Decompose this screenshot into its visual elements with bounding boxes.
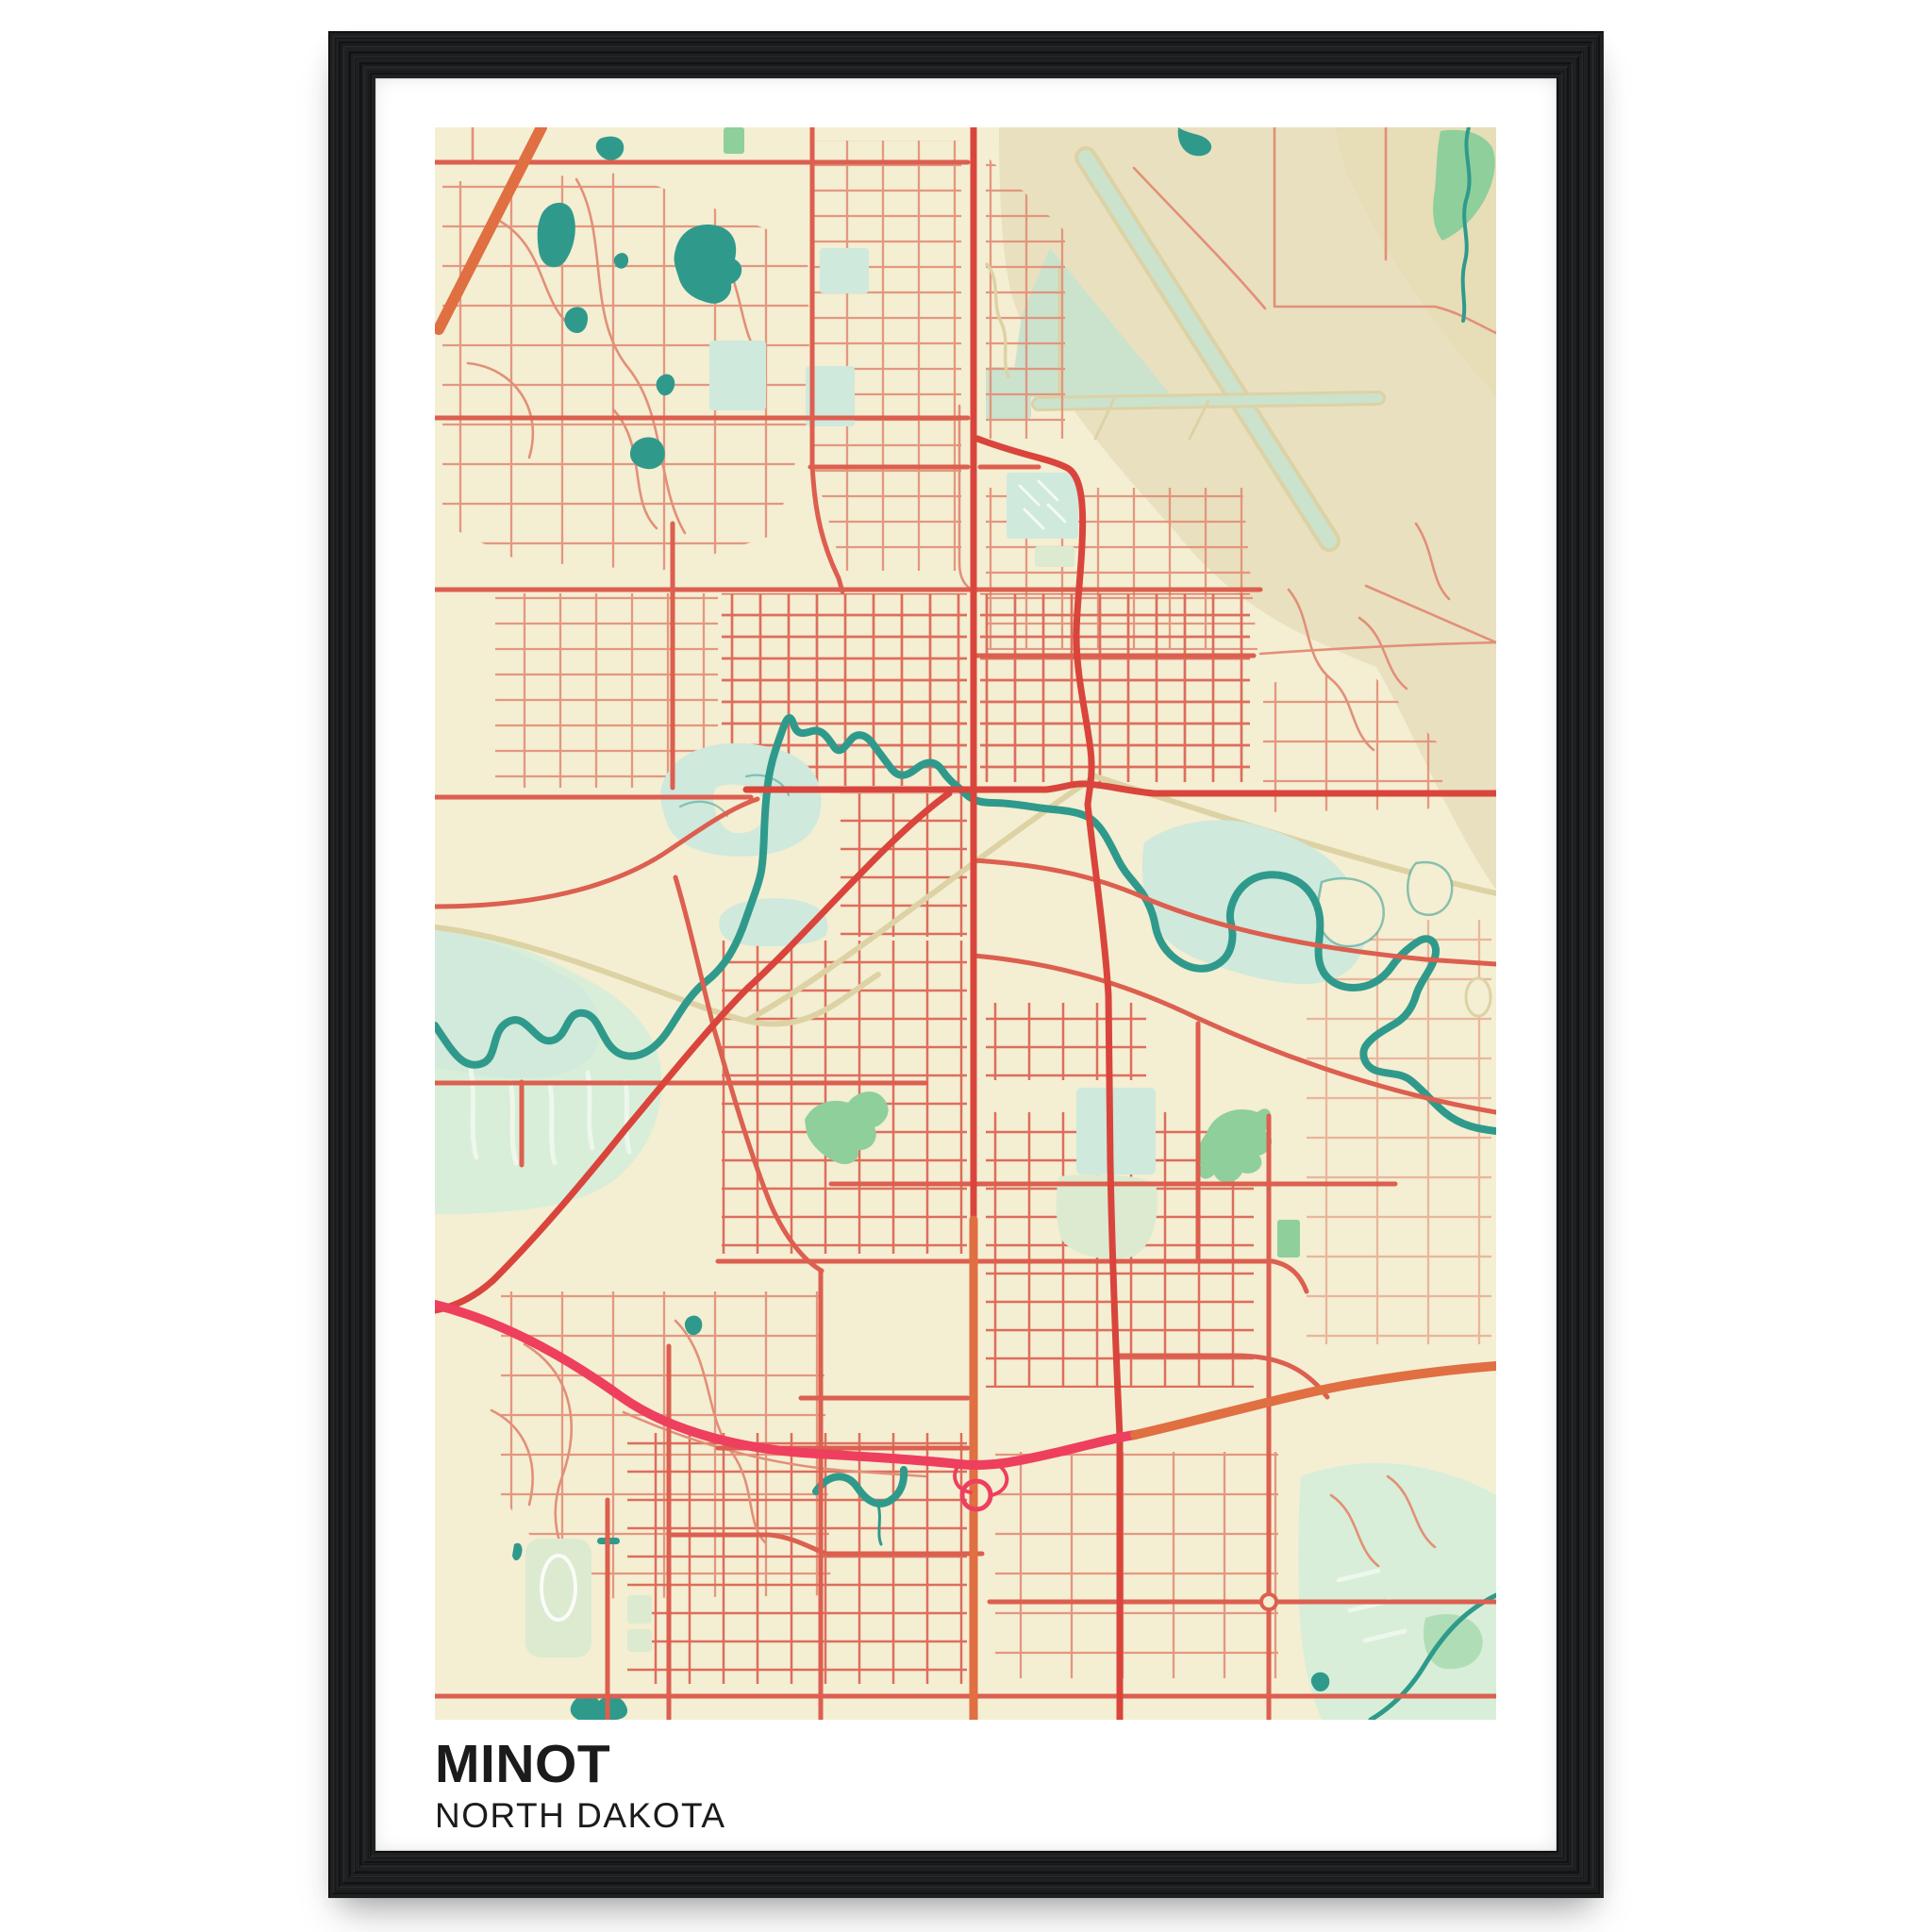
city-map xyxy=(435,127,1496,1720)
frame-top-rail xyxy=(328,31,1604,78)
poster-caption: MINOT NORTH DAKOTA xyxy=(435,1737,1497,1835)
state-name: NORTH DAKOTA xyxy=(435,1798,1497,1835)
poster-mat: MINOT NORTH DAKOTA xyxy=(375,78,1557,1851)
city-name: MINOT xyxy=(435,1737,1497,1791)
map-graphic xyxy=(435,127,1496,1720)
roundabout xyxy=(1261,1594,1276,1609)
frame-right-rail xyxy=(1557,31,1604,1898)
frame-left-rail xyxy=(328,31,375,1898)
picture-frame: MINOT NORTH DAKOTA xyxy=(328,31,1604,1898)
frame-bottom-rail xyxy=(328,1851,1604,1898)
product-photo: MINOT NORTH DAKOTA xyxy=(0,0,1932,1932)
oak-park-oval xyxy=(1466,978,1491,1016)
poster: MINOT NORTH DAKOTA xyxy=(375,78,1557,1851)
